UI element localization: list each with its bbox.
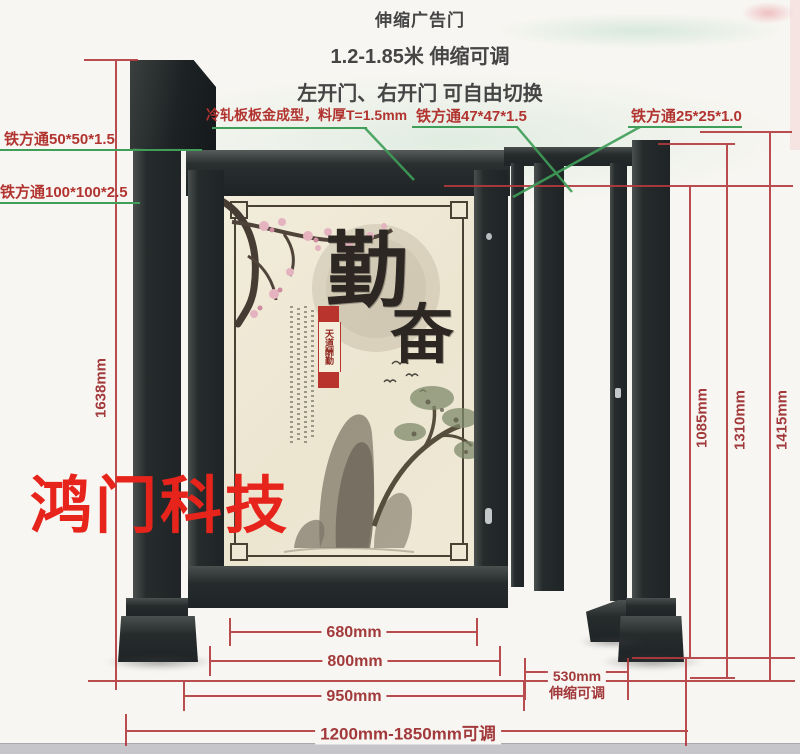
callout-tube47: 铁方通47*47*1.5 — [416, 105, 527, 126]
title-line-opening: 左开门、右开门 可自由切换 — [250, 77, 590, 106]
seal-bottom-cap — [318, 372, 339, 388]
seal-body: 天道酬勤 — [318, 322, 341, 372]
motor-housing-box — [130, 60, 216, 150]
extension-bar-mid — [534, 163, 564, 591]
dim-extension-width: 530mm — [548, 668, 606, 684]
dim-total-height-left: 1638mm — [93, 358, 110, 418]
dim-extension-note: 伸缩可调 — [544, 683, 610, 703]
foot-shadow — [578, 636, 648, 648]
callout-coldplate: 冷轧板板金成型，料厚T=1.5mm — [206, 105, 407, 125]
edge-pink — [790, 0, 800, 150]
callout-tube25: 铁方通25*25*1.0 — [631, 105, 742, 126]
right-post — [632, 140, 670, 602]
extension-bar-thin — [511, 163, 524, 587]
product-diagram-telescopic-ad-gate: 勤 奋 天道酬勤 — [0, 0, 800, 754]
calligraphy-char-fen: 奋 — [390, 284, 454, 376]
dim-mid-height: 1310mm — [732, 390, 749, 450]
door-hinge-dot — [486, 233, 492, 240]
door-lock-keyhole — [485, 508, 492, 524]
callout-tube50: 铁方通50*50*1.5 — [4, 128, 115, 149]
leader-underline-coldplate — [212, 127, 367, 129]
door-bottom-rail — [188, 566, 508, 608]
title-block: 伸缩广告门 1.2-1.85米 伸缩可调 左开门、右开门 可自由切换 — [250, 6, 590, 106]
callout-tube100: 铁方通100*100*2.5 — [0, 181, 128, 202]
leader-underline-tube50 — [0, 149, 202, 151]
dim-opening-height: 1085mm — [694, 388, 711, 448]
extension-bar-keyhole — [615, 388, 621, 398]
dim-post-height: 1415mm — [774, 390, 791, 450]
dim-door-outer-width: 950mm — [321, 688, 386, 706]
red-seal-banner: 天道酬勤 — [318, 306, 339, 388]
left-base-shadow — [104, 654, 214, 670]
dim-total-width: 1200mm-1850mm可调 — [315, 720, 501, 745]
title-line-range: 1.2-1.85米 伸缩可调 — [250, 40, 590, 69]
leader-underline-tube47 — [412, 126, 518, 128]
title-line-product: 伸缩广告门 — [250, 6, 590, 31]
dim-panel-width: 680mm — [321, 624, 386, 642]
watermark-text: 鸿门科技 — [30, 455, 290, 545]
right-base-shadow — [600, 654, 704, 670]
leader-underline-tube25 — [628, 126, 742, 128]
seal-text: 天道酬勤 — [323, 329, 336, 365]
extension-bar-right — [610, 163, 627, 601]
photo-bottom-strip — [0, 743, 800, 754]
right-post-base-step — [626, 598, 676, 618]
door-top-rail — [186, 150, 510, 196]
leader-underline-tube100 — [0, 202, 140, 204]
left-post-base-step — [126, 598, 188, 618]
dim-door-width: 800mm — [322, 653, 387, 671]
seal-top-cap — [318, 306, 339, 322]
pink-smudge — [742, 2, 794, 24]
